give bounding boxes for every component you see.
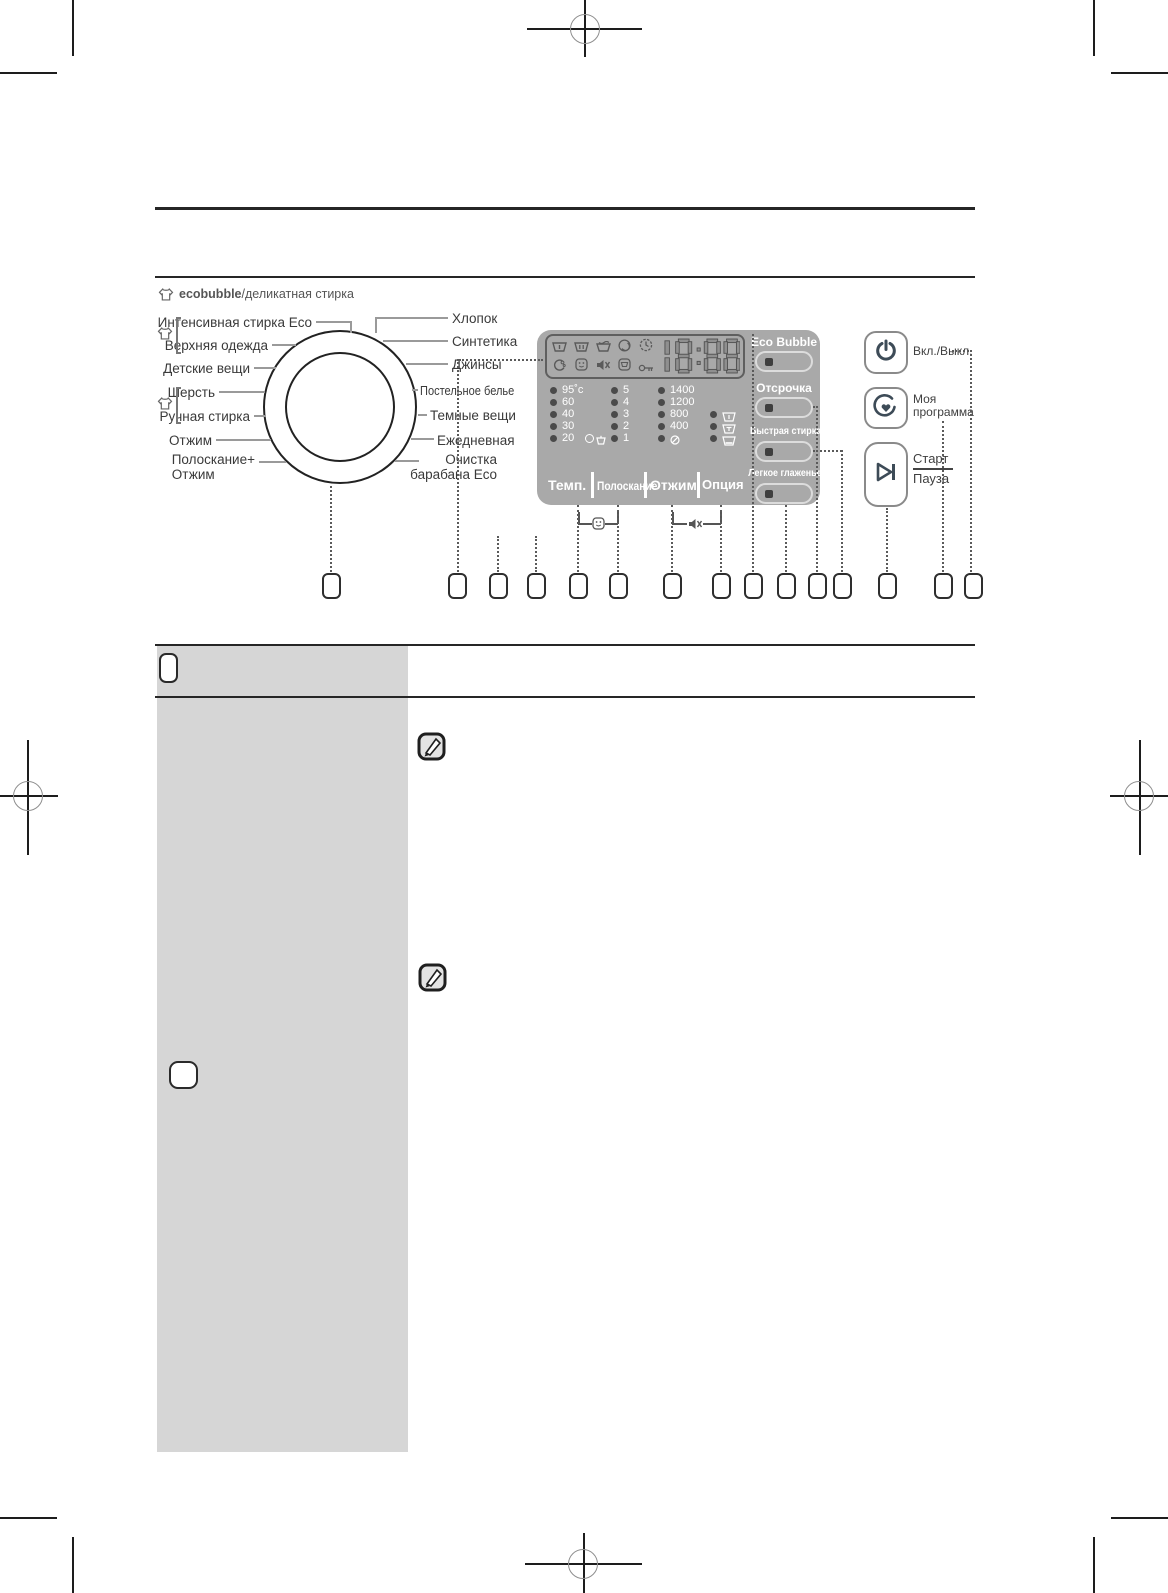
- callout-box: [569, 573, 588, 599]
- ecobubble-icon: [552, 358, 566, 377]
- mainwash-tub-icon: [574, 340, 590, 358]
- spin-level: 1400: [670, 384, 694, 396]
- dial-caption-brand: ecobubble: [179, 287, 242, 301]
- dial-label-baby: Детские вещи: [163, 361, 250, 376]
- callout-line: [970, 350, 972, 572]
- dial-label-spin: Отжим: [169, 433, 212, 448]
- shirt-icon: [158, 288, 174, 306]
- indicator-led: [550, 387, 557, 394]
- callout-line: [457, 359, 459, 572]
- callout-line: [577, 505, 579, 572]
- shirt-icon: [157, 327, 173, 345]
- dial-label-synthetics: Синтетика: [452, 334, 517, 349]
- manual-page: ecobubble/деликатная стирка Интенсивная …: [0, 0, 1168, 1593]
- connector-line: [395, 460, 419, 462]
- crop-mark: [1093, 0, 1095, 56]
- start-pause-divider: [913, 468, 953, 470]
- callout-line: [617, 505, 619, 572]
- callout-box: [489, 573, 508, 599]
- button-led: [765, 448, 773, 456]
- my-program-button-label: Моя программа: [913, 393, 971, 419]
- power-button: [864, 331, 908, 374]
- callout-line: [785, 505, 787, 572]
- section-rule: [155, 207, 975, 210]
- connector-line: [383, 340, 448, 342]
- indicator-led: [550, 411, 557, 418]
- rinse-tub-icon: [596, 340, 612, 358]
- indicator-led: [658, 387, 665, 394]
- crop-mark: [72, 0, 74, 56]
- program-dial-inner: [285, 352, 395, 462]
- selector-separator: [644, 472, 647, 498]
- combo-bracket: [703, 523, 721, 525]
- callout-line: [752, 334, 754, 572]
- connector-line: [375, 317, 448, 319]
- callout-box: [833, 573, 852, 599]
- dial-label-daily: Ежедневная: [437, 433, 515, 448]
- button-led: [765, 358, 773, 366]
- callout-line: [535, 536, 537, 572]
- registration-circle: [570, 14, 600, 44]
- sound-off-icon: [688, 517, 703, 535]
- callout-box: [777, 573, 796, 599]
- callout-line: [671, 505, 673, 572]
- section-rule: [155, 276, 975, 278]
- cold-water-icon: [585, 434, 594, 443]
- my-program-icon: [873, 393, 899, 424]
- callout-line: [952, 350, 972, 352]
- note-icon: [417, 732, 446, 766]
- callout-line: [813, 450, 842, 452]
- indicator-led: [550, 435, 557, 442]
- connector-line: [350, 321, 352, 333]
- option-button-label: Опция: [702, 477, 744, 492]
- note-icon: [418, 963, 447, 997]
- temp-level: 30: [562, 420, 574, 432]
- registration-circle: [1124, 781, 1154, 811]
- rinse-level: 3: [623, 408, 629, 420]
- registration-circle: [568, 1549, 598, 1579]
- connector-line: [406, 363, 448, 365]
- callout-box: [322, 573, 341, 599]
- indicator-led: [658, 411, 665, 418]
- start-pause-icon: [874, 460, 898, 489]
- callout-box: [878, 573, 897, 599]
- callout-box: [527, 573, 546, 599]
- soak-option-icon: [722, 433, 736, 451]
- connector-line: [219, 391, 265, 393]
- indicator-led: [658, 423, 665, 430]
- button-led: [765, 404, 773, 412]
- child-lock-icon: [592, 517, 605, 535]
- shirt-icon: [157, 397, 173, 415]
- connector-line: [375, 317, 377, 333]
- indicator-led: [611, 423, 618, 430]
- combo-bracket: [672, 523, 687, 525]
- power-icon: [874, 338, 898, 367]
- delay-clock-icon: [639, 338, 653, 357]
- callout-box: [744, 573, 763, 599]
- callout-line: [720, 505, 722, 572]
- dial-caption-rest: /деликатная стирка: [242, 287, 354, 301]
- indicator-led: [611, 435, 618, 442]
- eco-bubble-label: Eco Bubble: [748, 335, 820, 349]
- temp-level: 20: [562, 432, 574, 444]
- temp-level: 95˚c: [562, 384, 583, 396]
- crop-mark: [1111, 72, 1168, 74]
- callout-box: [934, 573, 953, 599]
- spin-level: 1200: [670, 396, 694, 408]
- callout-line: [841, 450, 843, 572]
- dial-label-cotton: Хлопок: [452, 311, 497, 326]
- crop-mark: [0, 72, 57, 74]
- group-bracket: [176, 317, 181, 354]
- selector-separator: [591, 472, 594, 498]
- indicator-led: [550, 399, 557, 406]
- temp-button-label: Темп.: [548, 477, 586, 493]
- dial-label-drum-clean: Очистка барабана Eco: [410, 452, 497, 482]
- table-callout-box: [159, 653, 178, 683]
- connector-line: [254, 367, 276, 369]
- indicator-led: [611, 399, 618, 406]
- indicator-led: [611, 411, 618, 418]
- indicator-led: [710, 435, 717, 442]
- crop-mark: [72, 1537, 74, 1593]
- indicator-led: [658, 435, 665, 442]
- indicator-led: [658, 399, 665, 406]
- callout-box: [712, 573, 731, 599]
- connector-line: [316, 321, 352, 323]
- my-program-button: [864, 387, 908, 429]
- connector-line: [411, 438, 434, 440]
- crop-mark: [1111, 1517, 1168, 1519]
- callout-box: [663, 573, 682, 599]
- child-lock-icon: [575, 358, 588, 376]
- spin-level: 400: [670, 420, 688, 432]
- connector-line: [254, 415, 266, 417]
- callout-line: [886, 508, 888, 572]
- indicator-led: [611, 387, 618, 394]
- callout-line: [497, 536, 499, 572]
- delay-end-button: [755, 397, 813, 418]
- easy-iron-button: [755, 483, 813, 504]
- rinse-level: 2: [623, 420, 629, 432]
- eco-bubble-button: [755, 351, 813, 372]
- button-led: [765, 490, 773, 498]
- callout-box: [808, 573, 827, 599]
- callout-box: [964, 573, 983, 599]
- rinse-level: 4: [623, 396, 629, 408]
- dial-label-handwash: Ручная стирка: [159, 409, 250, 424]
- temp-level: 60: [562, 396, 574, 408]
- indicator-led: [710, 423, 717, 430]
- indicator-led: [710, 411, 717, 418]
- door-lock-icon: [618, 358, 631, 376]
- rinse-level: 5: [623, 384, 629, 396]
- callout-line: [942, 421, 944, 572]
- crop-mark: [1093, 1537, 1095, 1593]
- connector-line: [272, 344, 296, 346]
- dial-caption: ecobubble/деликатная стирка: [179, 287, 354, 301]
- dial-label-rinse-spin: Полоскание+ Отжим: [172, 452, 255, 482]
- table-header-cell: [157, 646, 408, 696]
- quick-wash-button: [755, 441, 813, 462]
- no-spin-icon: [670, 432, 680, 450]
- rinse-button-label: Полоскание: [597, 479, 657, 493]
- temp-level: 40: [562, 408, 574, 420]
- prewash-tub-icon: [552, 340, 568, 358]
- spin-icon: [618, 339, 631, 357]
- callout-line: [330, 486, 332, 572]
- dial-label-dark: Темные вещи: [430, 408, 516, 423]
- rinse-level: 1: [623, 432, 629, 444]
- callout-box: [448, 573, 467, 599]
- easy-iron-label: Легкое глаженье: [748, 467, 819, 479]
- selector-separator: [697, 472, 700, 498]
- dial-label-wool: Шерсть: [168, 385, 215, 400]
- dial-label-bedding: Постельное белье: [420, 383, 514, 398]
- delay-end-label: Отсрочка: [748, 381, 820, 395]
- quick-wash-label: Быстрая стирка: [750, 425, 818, 437]
- sound-off-icon: [596, 358, 611, 376]
- key-icon: [638, 360, 654, 378]
- callout-box: [609, 573, 628, 599]
- table-callout-box: [169, 1061, 198, 1089]
- tap-icon: [596, 432, 607, 450]
- callout-line: [459, 359, 543, 361]
- indicator-led: [550, 423, 557, 430]
- connector-line: [216, 439, 271, 441]
- start-pause-button: [864, 442, 908, 507]
- registration-circle: [13, 781, 43, 811]
- spin-button-label: Отжим: [650, 477, 697, 493]
- group-bracket: [176, 387, 181, 424]
- callout-line: [816, 406, 818, 572]
- connector-line: [418, 414, 427, 416]
- seven-segment-display: [656, 337, 740, 380]
- connector-line: [259, 461, 286, 463]
- crop-mark: [0, 1517, 57, 1519]
- connector-line: [412, 389, 418, 391]
- spin-level: 800: [670, 408, 688, 420]
- combo-bracket: [578, 523, 592, 525]
